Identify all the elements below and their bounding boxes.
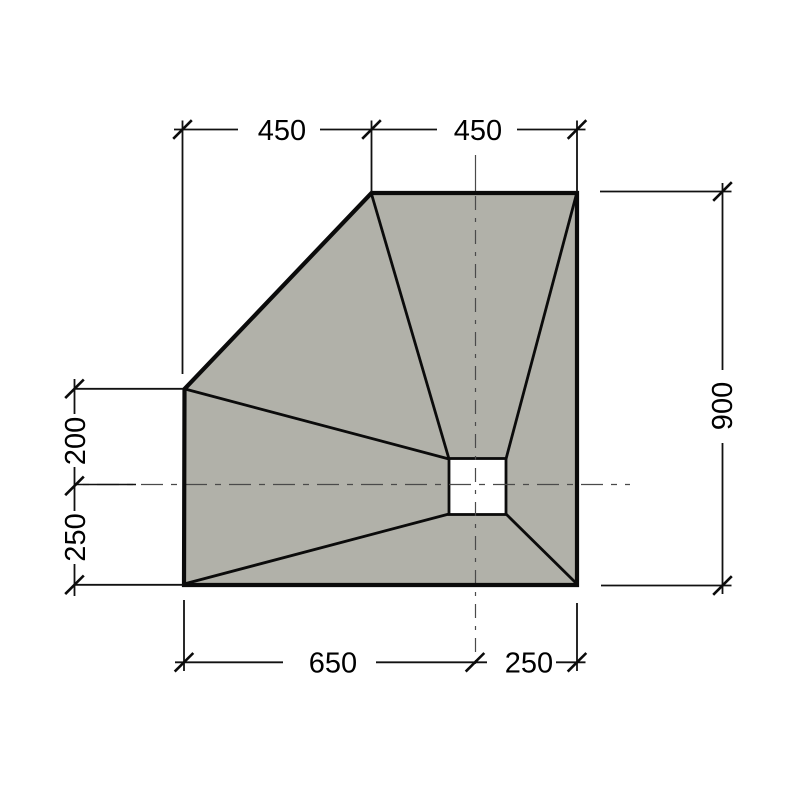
svg-text:450: 450 (258, 115, 306, 147)
svg-text:650: 650 (309, 648, 357, 680)
svg-text:450: 450 (454, 115, 502, 147)
svg-text:250: 250 (505, 648, 553, 680)
svg-text:250: 250 (60, 513, 92, 561)
svg-text:900: 900 (707, 382, 739, 430)
svg-text:200: 200 (60, 417, 92, 465)
